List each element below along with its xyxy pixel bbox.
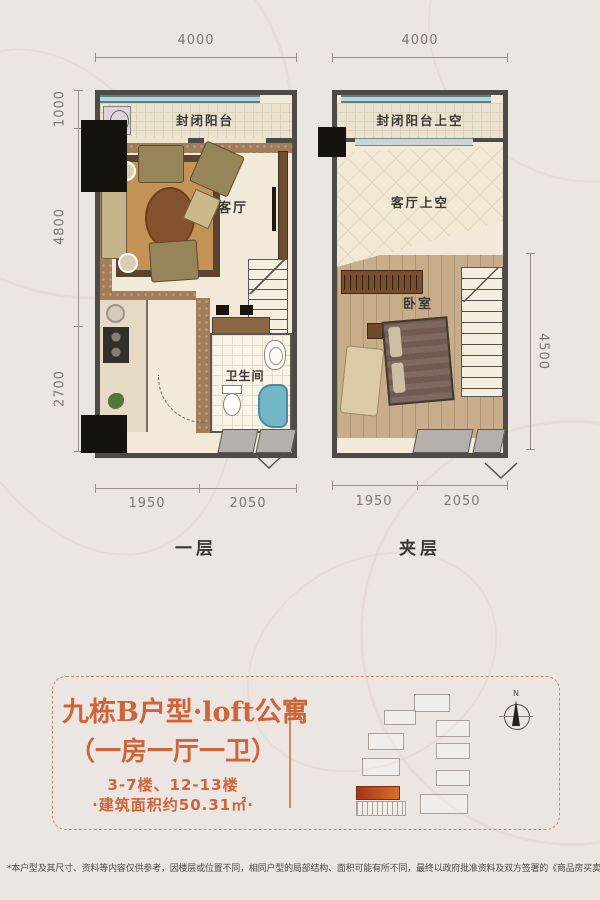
dim-tick — [526, 449, 535, 450]
unit-title: 九栋B户型·loft公寓 — [62, 690, 284, 729]
dim-tick — [332, 481, 333, 490]
site-building — [384, 710, 416, 725]
mezzanine-plan: 封闭阳台上空 客厅上空 卧室 — [332, 90, 508, 458]
side-table — [118, 253, 138, 273]
stair-winder — [249, 260, 287, 294]
dim-1950-first: 1950 — [117, 496, 177, 511]
nightstand — [367, 323, 383, 339]
dim-line-right — [530, 253, 531, 450]
unit-area: ·建筑面积约50.31㎡· — [62, 794, 284, 815]
balcony-window-band — [341, 95, 491, 103]
dim-tick — [95, 53, 96, 62]
dim-tick — [507, 481, 508, 490]
dim-tick — [296, 53, 297, 62]
stove — [103, 327, 129, 363]
stair-winder — [462, 268, 502, 302]
dim-tick — [507, 53, 508, 62]
entry-door-arc — [158, 375, 204, 423]
unit-floors: 3-7楼、12-13楼 — [62, 774, 284, 795]
disclaimer-text: *本户型及其尺寸、资料等内容仅供参考，因楼层或位置不同，相同户型的局部结构、面积… — [7, 864, 597, 875]
bathtub — [258, 384, 288, 428]
balcony-window-band — [100, 95, 260, 103]
site-building — [362, 758, 400, 776]
chaise-bench — [340, 345, 385, 417]
dim-line-bottom-right-plan — [332, 485, 508, 486]
dim-line-top-left-plan — [95, 57, 297, 58]
room-label-living: 客厅 — [218, 197, 248, 216]
site-building — [368, 733, 404, 750]
dim-4500: 4500 — [536, 322, 551, 382]
wardrobe-hangers — [344, 275, 420, 290]
dim-tick — [95, 484, 96, 493]
stairs-mezzanine — [461, 267, 503, 397]
dim-tick — [296, 484, 297, 493]
floorplan-page: 4000 1000 4800 2700 1950 2050 一层 封闭阳台 — [0, 0, 600, 900]
washbasin — [264, 340, 286, 370]
site-building — [436, 770, 470, 786]
room-label-balcony: 封闭阳台 — [140, 110, 270, 129]
dim-line-left-chain — [78, 90, 79, 452]
door-swing-mark — [484, 462, 518, 480]
dim-2050-first: 2050 — [218, 496, 278, 511]
first-floor-plan: 封闭阳台 客厅 — [95, 90, 297, 458]
dim-line-top-right-plan — [332, 57, 508, 58]
bay-window — [472, 429, 505, 453]
pillow — [391, 362, 406, 393]
armchair — [149, 239, 200, 282]
bay-window — [255, 429, 296, 453]
pillow — [388, 326, 403, 357]
dining-chair — [216, 305, 229, 315]
dim-4000-first: 4000 — [166, 33, 226, 48]
site-building — [436, 743, 470, 759]
dim-line-bottom-left-plan — [95, 488, 297, 489]
wardrobe — [341, 270, 423, 294]
bay-window — [412, 429, 473, 453]
tv-cabinet — [278, 151, 288, 269]
room-label-bath: 卫生间 — [214, 367, 276, 384]
tv-screen — [272, 187, 276, 231]
site-building — [436, 720, 470, 737]
compass-needle — [512, 700, 520, 726]
site-plan: N — [305, 682, 550, 822]
floor-label-mezz: 夹层 — [370, 534, 470, 559]
compass-north-label: N — [510, 689, 522, 698]
toilet-bowl — [223, 393, 241, 416]
site-building — [420, 794, 468, 814]
room-label-balcony-void: 封闭阳台上空 — [345, 110, 495, 129]
dim-tick — [199, 484, 200, 493]
dim-tick — [74, 90, 83, 91]
unit-subtitle: （一房一厅一卫） — [62, 731, 284, 768]
dim-tick — [417, 481, 418, 490]
dim-4800: 4800 — [53, 197, 68, 257]
armchair — [138, 145, 184, 183]
dim-2050-mezz: 2050 — [432, 494, 492, 509]
dim-2700: 2700 — [53, 359, 68, 419]
dim-1950-mezz: 1950 — [344, 494, 404, 509]
dim-1000: 1000 — [53, 79, 68, 139]
info-divider — [289, 702, 291, 808]
bed — [381, 316, 454, 405]
dim-tick — [332, 53, 333, 62]
bay-window — [217, 429, 258, 453]
site-building — [414, 694, 450, 712]
bathroom: 卫生间 — [210, 333, 292, 433]
dim-tick — [526, 253, 535, 254]
marble-floor-band — [100, 143, 292, 153]
kitchen-sink — [106, 304, 125, 323]
dim-4000-mezz: 4000 — [390, 33, 450, 48]
basin-bowl — [269, 347, 283, 365]
door-swing-mark — [252, 452, 286, 470]
room-label-living-void: 客厅上空 — [365, 192, 475, 211]
void-guard-band — [355, 138, 473, 146]
structural-column — [81, 415, 127, 453]
kitchen-counter — [100, 300, 148, 432]
structural-column — [318, 127, 346, 157]
dim-tick — [74, 326, 83, 327]
site-building-units — [356, 801, 406, 816]
room-label-bedroom: 卧室 — [403, 293, 433, 312]
dining-chair — [240, 305, 253, 315]
structural-column — [81, 120, 127, 192]
marble-floor-band — [100, 291, 196, 300]
floor-label-first: 一层 — [146, 534, 246, 559]
site-building-highlighted — [356, 786, 400, 800]
